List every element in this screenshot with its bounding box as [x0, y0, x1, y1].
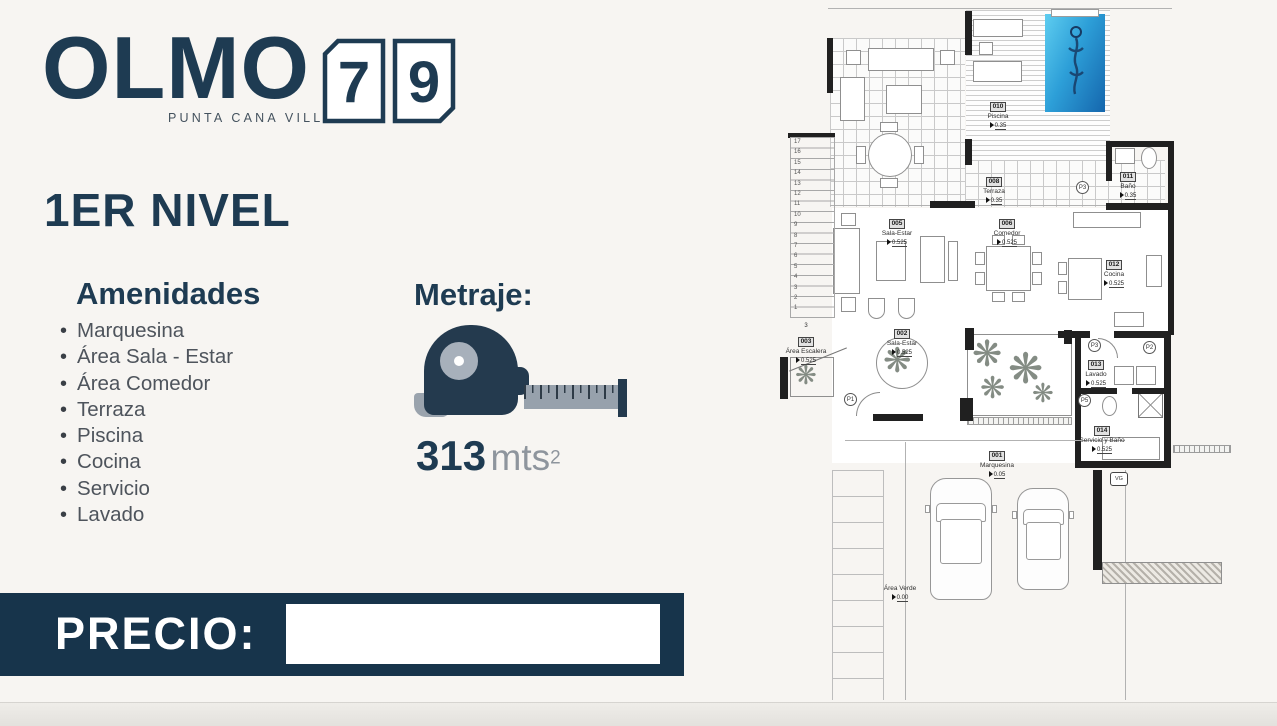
driveway-line	[905, 442, 906, 700]
plan-outline	[828, 8, 1172, 9]
car-roof	[1026, 522, 1061, 560]
pool-lounger	[973, 19, 1023, 37]
pool-lounger	[973, 61, 1022, 82]
pool	[1045, 14, 1105, 112]
comedor-chair	[975, 272, 985, 285]
room-label-marquesina: 001 Marquesina 0.05	[965, 444, 1029, 478]
room-label-lavado: 013 Lavado 0.525	[1064, 353, 1128, 387]
tape-ruler-band	[524, 385, 620, 409]
level-title: 1ER NIVEL	[44, 183, 291, 237]
tub-chair	[868, 298, 885, 319]
pergola-slats	[967, 417, 1072, 425]
driveway-line	[1125, 470, 1126, 700]
terrace-side-table	[846, 50, 861, 65]
sala-ottoman	[948, 241, 958, 281]
door-marker: P5	[1078, 394, 1091, 407]
tape-measure-icon	[412, 325, 627, 437]
room-label-bano: 011 Baño 0.35	[1096, 165, 1160, 199]
island-stool	[1058, 262, 1067, 275]
dryer	[1136, 366, 1156, 385]
amenities-title: Amenidades	[76, 276, 260, 312]
unit-digit-7-box: 7	[322, 38, 386, 124]
wall-segment	[965, 11, 972, 55]
amenity-item: Marquesina	[60, 318, 233, 344]
room-label-area-verde: Área Verde 0.00	[868, 585, 932, 601]
brand-logo-text: OLMO	[42, 22, 310, 114]
car-mirror	[1069, 511, 1074, 519]
car-sedan	[1017, 488, 1069, 590]
sala-side-table	[841, 297, 856, 312]
car-mirror	[925, 505, 930, 513]
terrace-loveseat	[840, 77, 865, 121]
swimmer-figure	[1045, 14, 1105, 112]
comedor-table	[986, 246, 1031, 291]
room-label-comedor: 006 Comedor 0.525	[975, 212, 1039, 246]
wall-segment	[1168, 141, 1174, 211]
stove	[1146, 255, 1162, 287]
room-label-terraza: 008 Terraza 0.35	[962, 170, 1026, 204]
room-label-servicio-bano: 014 Servicio y Baño 0.525	[1070, 419, 1134, 453]
metraje-number: 313	[416, 432, 486, 479]
room-label-piscina: 010 Piscina 0.35	[966, 95, 1030, 129]
kitchen-counter	[1073, 212, 1141, 228]
room-label-sala-estar-2: 002 Sala-Estar 0.525	[870, 322, 934, 356]
pool-ledge	[1051, 9, 1099, 17]
wall-segment	[960, 398, 973, 421]
terrace-sofa	[868, 48, 934, 71]
wall-segment	[1075, 388, 1117, 394]
round-dining-table	[868, 133, 912, 177]
door-marker: P2	[1143, 341, 1156, 354]
dining-chair	[880, 178, 898, 188]
unit-digit-9: 9	[408, 50, 440, 115]
terrace-coffee-table	[886, 85, 922, 114]
sala-rug	[876, 241, 906, 281]
wall-segment	[1064, 330, 1072, 344]
dining-chair	[856, 146, 866, 164]
door-marker: P3	[1076, 181, 1089, 194]
amenity-item: Cocina	[60, 449, 233, 475]
amenity-item: Terraza	[60, 397, 233, 423]
wall-segment	[1075, 461, 1171, 468]
car-mirror	[1012, 511, 1017, 519]
metraje-title: Metraje:	[414, 277, 533, 313]
wall-segment	[873, 414, 923, 421]
garage-marker: VG	[1110, 472, 1128, 486]
tape-ring	[440, 342, 478, 380]
amenities-list: Marquesina Área Sala - Estar Área Comedo…	[60, 318, 233, 528]
metraje-value: 313 mts2	[416, 432, 561, 480]
unit-digit-9-box: 9	[392, 38, 456, 124]
door-marker: P3	[1088, 339, 1101, 352]
tape-end-hook	[618, 379, 627, 417]
sala-side-table	[841, 213, 856, 226]
terrace-side-table	[940, 50, 955, 65]
metraje-unit: mts	[491, 437, 551, 478]
staircase: 1716151413121110987654321	[790, 137, 835, 318]
room-label-cocina: 012 Cocina 0.525	[1082, 253, 1146, 287]
car-mirror	[992, 505, 997, 513]
room-label-sala-estar: 005 Sala-Estar 0.525	[865, 212, 929, 246]
pergola-slats	[1173, 445, 1231, 453]
sala-sofa	[833, 228, 860, 294]
island-stool	[1058, 281, 1067, 294]
wall-segment	[827, 38, 833, 93]
wall-segment	[1132, 388, 1171, 394]
plant-icon: ❋	[980, 374, 1005, 404]
kitchen-sink	[1114, 312, 1144, 327]
toilet	[1102, 396, 1117, 416]
price-value-box	[286, 604, 660, 664]
shower	[1138, 392, 1163, 418]
gravel-strip	[1102, 562, 1222, 584]
dining-chair	[914, 146, 924, 164]
amenity-item: Servicio	[60, 476, 233, 502]
wall-segment	[1093, 470, 1102, 570]
plant-icon: ❋	[1032, 380, 1054, 406]
door-marker: P1	[844, 393, 857, 406]
price-label: PRECIO:	[55, 608, 257, 660]
comedor-chair	[975, 252, 985, 265]
tub-chair	[898, 298, 915, 319]
plant-icon: ❋	[972, 336, 1002, 372]
wall-segment	[1106, 203, 1174, 210]
page-bottom-edge	[0, 702, 1277, 726]
comedor-chair	[992, 292, 1005, 302]
car-suv	[930, 478, 992, 600]
amenity-item: Área Sala - Estar	[60, 344, 233, 370]
wall-segment	[965, 139, 972, 165]
comedor-chair	[1032, 272, 1042, 285]
dining-chair	[880, 122, 898, 132]
metraje-exponent: 2	[550, 448, 561, 469]
plant-icon: ❋	[795, 362, 817, 388]
amenity-item: Piscina	[60, 423, 233, 449]
flyer-page: OLMO PUNTA CANA VILLAGE 7 9 1ER NIVEL Am…	[0, 0, 1277, 726]
wall-segment	[1164, 335, 1171, 463]
wall-segment	[1058, 331, 1090, 338]
wall-segment	[1168, 210, 1174, 335]
comedor-chair	[1032, 252, 1042, 265]
unit-digit-7: 7	[338, 50, 370, 115]
floor-plan: ❋ ❋ ❋ ❋ ❋ ❋ 17161	[780, 0, 1277, 702]
wall-segment	[1106, 141, 1174, 147]
amenity-item: Lavado	[60, 502, 233, 528]
bath-sink	[1115, 148, 1135, 164]
room-label-area-escalera: 3 003 Área Escalera 0.525	[774, 322, 838, 364]
amenity-item: Área Comedor	[60, 371, 233, 397]
wall-segment	[1114, 331, 1168, 338]
price-bar: PRECIO:	[0, 593, 684, 676]
comedor-chair	[1012, 292, 1025, 302]
deck-side-table	[979, 42, 993, 55]
car-roof	[940, 519, 982, 565]
